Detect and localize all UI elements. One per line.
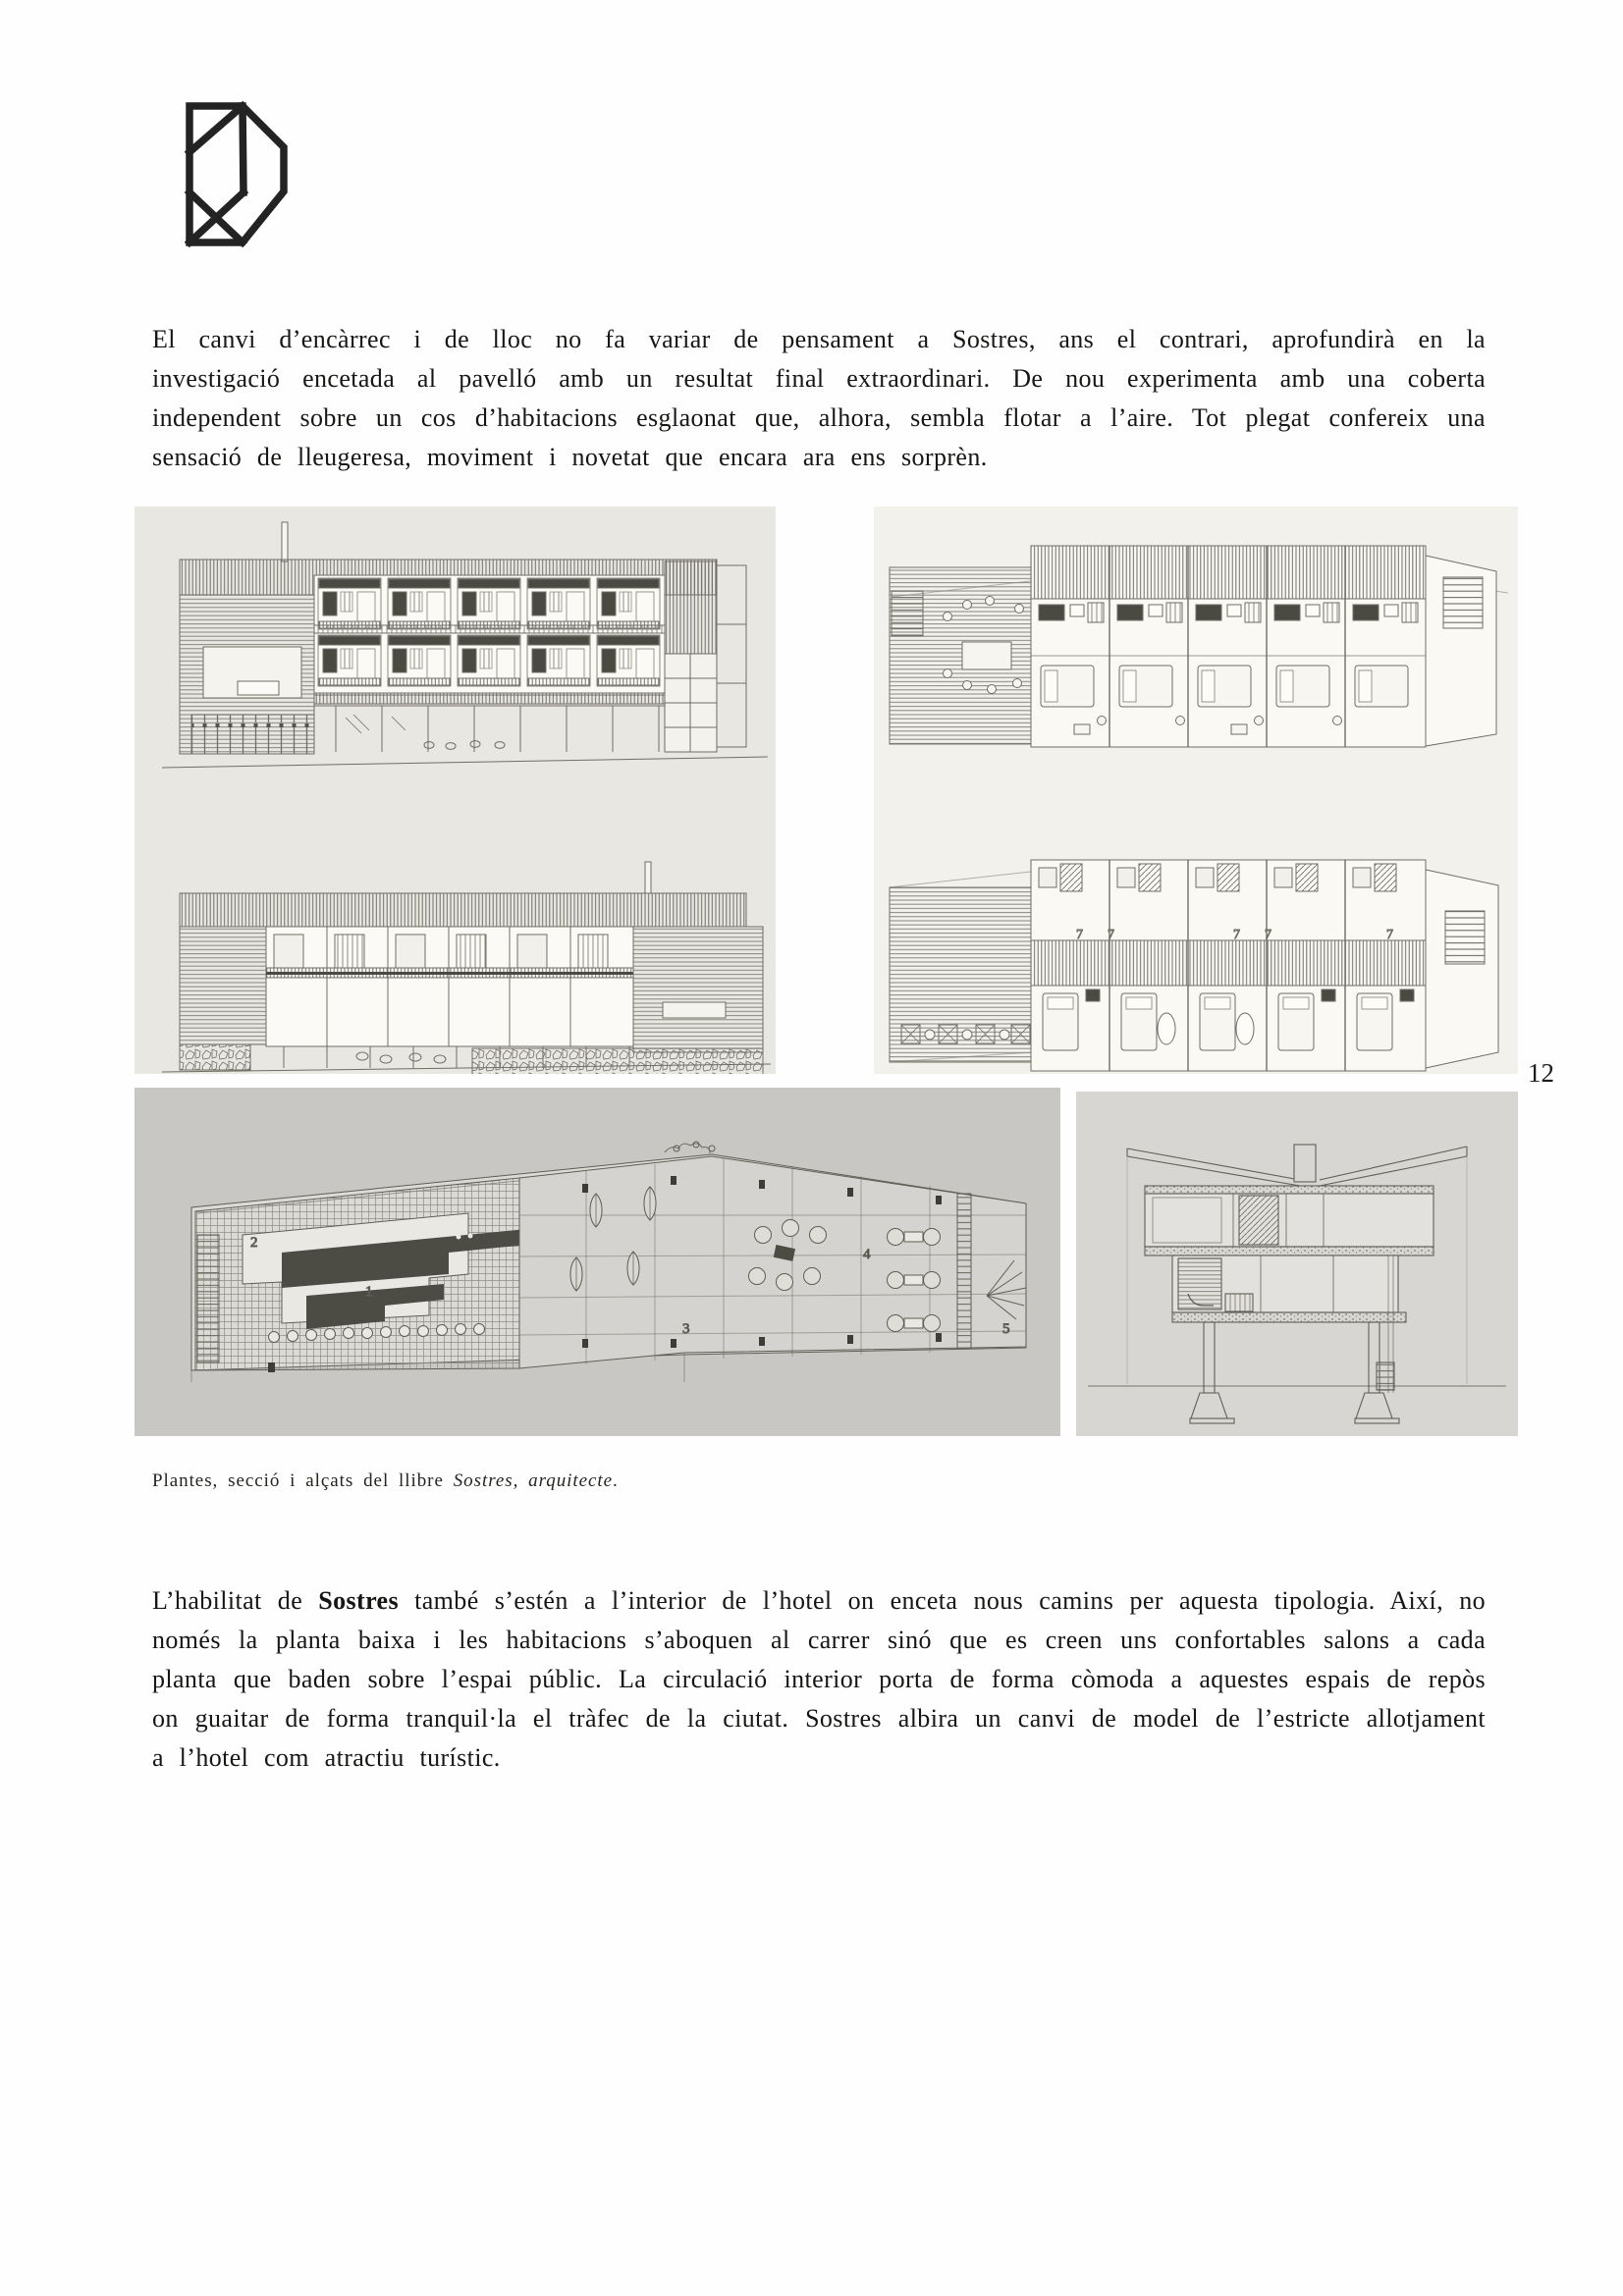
- floor-plans-drawing: 7 7 7 7 7: [874, 507, 1518, 1074]
- paragraph-body: L’habilitat de Sostres també s’estén a l…: [152, 1581, 1486, 1778]
- figure-floor-plans: 7 7 7 7 7: [874, 507, 1518, 1074]
- paragraph-body-bold-name: Sostres: [318, 1586, 399, 1615]
- elevation-bottom: [162, 862, 771, 1074]
- ground-plan-drawing: 2 1 3 4 5: [135, 1088, 1060, 1436]
- zone-label: 1: [365, 1284, 373, 1300]
- section: [1088, 1145, 1506, 1423]
- hexagonal-line-monogram-icon: [182, 98, 292, 250]
- zone-label: 4: [863, 1247, 871, 1262]
- zone-label: 5: [1002, 1321, 1010, 1337]
- figure-caption: Plantes, secció i alçats del llibre Sost…: [152, 1470, 619, 1492]
- paragraph-intro: El canvi d’encàrrec i de lloc no fa vari…: [152, 320, 1486, 477]
- publisher-logo: [182, 98, 292, 250]
- paragraph-body-start: L’habilitat de: [152, 1586, 318, 1615]
- caption-period: .: [613, 1470, 619, 1491]
- caption-prefix: Plantes, secció i alçats del llibre: [152, 1470, 454, 1491]
- zone-label: 3: [682, 1321, 690, 1337]
- page-number: 12: [1528, 1058, 1554, 1089]
- paragraph-intro-text: El canvi d’encàrrec i de lloc no fa vari…: [152, 325, 1486, 471]
- figure-elevations: [135, 507, 776, 1074]
- figure-cross-section: [1076, 1092, 1518, 1436]
- elevations-drawing: [135, 507, 776, 1074]
- caption-work-title: Sostres, arquitecte: [454, 1470, 613, 1491]
- floor-plan-bottom: 7 7 7 7 7: [890, 860, 1498, 1071]
- ground-plan: 2 1 3 4 5: [191, 1142, 1026, 1382]
- cross-section-drawing: [1076, 1092, 1518, 1436]
- document-page: { "page": { "number": "12", "background"…: [0, 0, 1623, 2296]
- elevation-top: [162, 522, 768, 768]
- floor-plan-top: [890, 546, 1508, 747]
- figure-ground-plan: 2 1 3 4 5: [135, 1088, 1060, 1436]
- zone-label: 2: [250, 1235, 258, 1251]
